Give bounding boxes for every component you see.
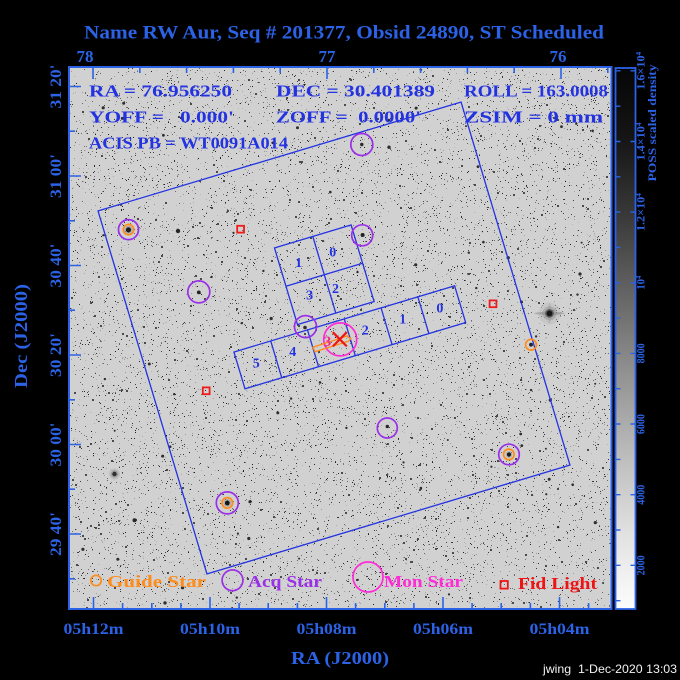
svg-text:1: 1 — [295, 256, 302, 271]
svg-text:jwing 1-Dec-2020 13:03: jwing 1-Dec-2020 13:03 — [542, 662, 677, 676]
svg-text:05h12m: 05h12m — [64, 621, 125, 638]
svg-text:10⁴: 10⁴ — [634, 275, 648, 289]
svg-text:6000: 6000 — [634, 414, 648, 434]
svg-text:DEC = 30.401389: DEC = 30.401389 — [276, 82, 435, 101]
svg-text:76: 76 — [550, 47, 567, 66]
svg-text:1.2×10⁴: 1.2×10⁴ — [634, 193, 648, 231]
svg-text:ZSIM = 0 mm: ZSIM = 0 mm — [464, 107, 603, 126]
svg-text:YOFF = 0.000': YOFF = 0.000' — [89, 107, 234, 126]
svg-text:05h10m: 05h10m — [180, 621, 241, 638]
svg-text:29 40': 29 40' — [48, 512, 65, 556]
svg-text:Name RW Aur, Seq # 201377, Obs: Name RW Aur, Seq # 201377, Obsid 24890, … — [84, 23, 604, 44]
svg-text:RA (J2000): RA (J2000) — [291, 648, 389, 669]
svg-text:2000: 2000 — [634, 555, 648, 575]
svg-text:78: 78 — [77, 47, 94, 66]
svg-text:77: 77 — [319, 47, 337, 66]
svg-text:05h04m: 05h04m — [530, 621, 591, 638]
svg-text:4000: 4000 — [634, 485, 648, 505]
svg-text:8000: 8000 — [634, 343, 648, 363]
svg-text:05h06m: 05h06m — [413, 621, 474, 638]
svg-text:3: 3 — [324, 334, 332, 350]
svg-text:5: 5 — [253, 357, 260, 372]
svg-text:Dec (J2000): Dec (J2000) — [11, 284, 32, 388]
svg-text:Acq Star: Acq Star — [248, 572, 323, 591]
svg-text:30 40': 30 40' — [48, 244, 65, 288]
svg-text:3: 3 — [306, 289, 313, 304]
svg-text:RA = 76.956250: RA = 76.956250 — [89, 82, 232, 101]
svg-text:31 20': 31 20' — [48, 65, 65, 109]
svg-text:2: 2 — [362, 324, 369, 339]
svg-text:ACIS PB = WT0091A014: ACIS PB = WT0091A014 — [89, 133, 289, 152]
svg-text:Guide Star: Guide Star — [107, 572, 207, 591]
svg-text:05h08m: 05h08m — [297, 621, 358, 638]
svg-text:Fid Light: Fid Light — [518, 574, 597, 593]
svg-text:2: 2 — [332, 282, 339, 297]
svg-text:30 00': 30 00' — [48, 423, 65, 467]
svg-text:POSS scaled density: POSS scaled density — [645, 65, 659, 182]
svg-text:Mon Star: Mon Star — [384, 572, 464, 591]
svg-text:4: 4 — [289, 345, 296, 360]
svg-text:0: 0 — [436, 301, 443, 316]
svg-text:0: 0 — [329, 246, 336, 261]
svg-text:ZOFF = 0.0000': ZOFF = 0.0000' — [276, 107, 421, 126]
svg-text:30 20': 30 20' — [48, 333, 65, 377]
svg-text:1: 1 — [399, 313, 406, 328]
svg-text:ROLL = 163.0008: ROLL = 163.0008 — [464, 82, 608, 101]
svg-text:31 00': 31 00' — [48, 154, 65, 198]
